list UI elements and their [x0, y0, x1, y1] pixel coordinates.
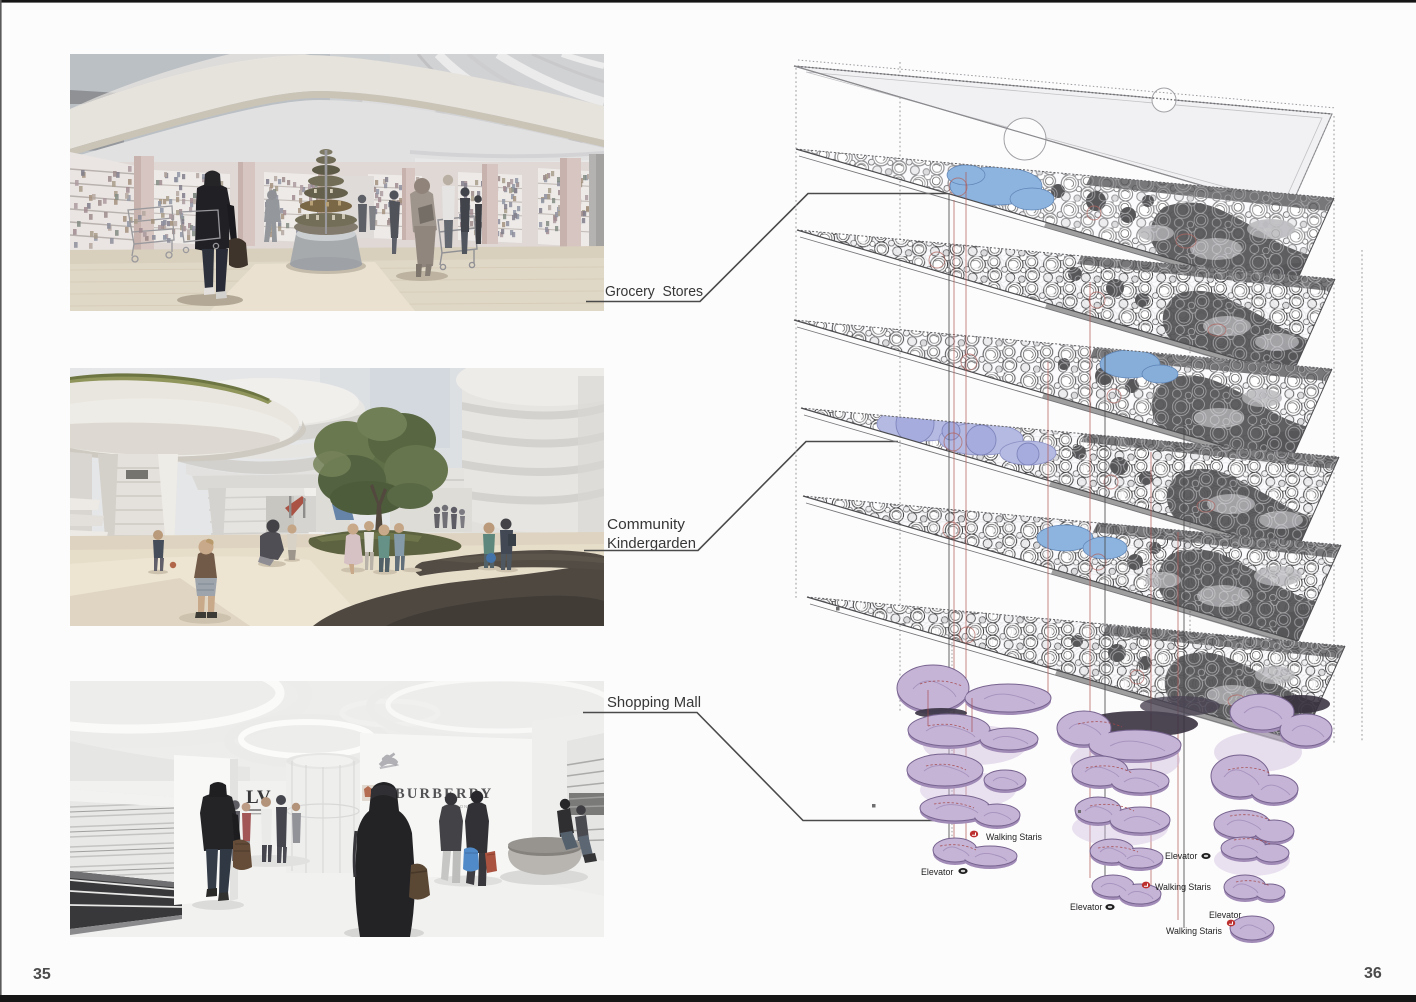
svg-text:Grocery Stores: Grocery Stores: [605, 283, 703, 300]
svg-text:Kindergarden: Kindergarden: [607, 535, 696, 552]
svg-text:Walking Staris: Walking Staris: [1155, 882, 1211, 892]
svg-text:Community: Community: [607, 516, 686, 533]
svg-text:Shopping Mall: Shopping Mall: [607, 694, 701, 711]
svg-text:Walking Staris: Walking Staris: [986, 832, 1042, 842]
svg-text:Elevator: Elevator: [1209, 910, 1241, 920]
svg-text:Elevator: Elevator: [921, 867, 953, 877]
svg-text:35: 35: [33, 966, 51, 983]
svg-text:Walking Staris: Walking Staris: [1166, 926, 1222, 936]
svg-text:Elevator: Elevator: [1070, 902, 1102, 912]
svg-text:36: 36: [1364, 965, 1382, 982]
svg-text:Elevator: Elevator: [1165, 851, 1197, 861]
